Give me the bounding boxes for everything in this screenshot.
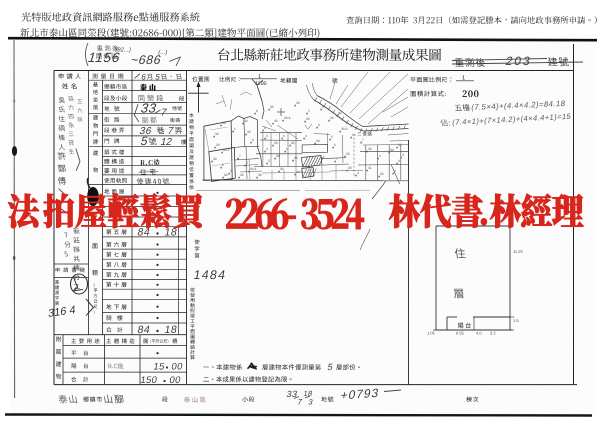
svg-text:3.2: 3.2 (490, 331, 496, 336)
svg-text:33: 33 (368, 147, 372, 151)
svg-text:1484: 1484 (192, 268, 227, 282)
svg-text:33: 33 (390, 148, 394, 152)
svg-text:9: 9 (318, 123, 320, 127)
svg-text:0: 0 (398, 159, 400, 163)
svg-text:33: 33 (276, 154, 280, 158)
svg-text:33: 33 (398, 143, 402, 147)
svg-text:15: 15 (152, 362, 165, 373)
svg-text:33: 33 (274, 119, 278, 123)
svg-text:6: 6 (222, 163, 224, 167)
svg-text:150: 150 (139, 375, 158, 386)
svg-text:33-2: 33-2 (223, 148, 230, 152)
svg-text:9: 9 (379, 154, 381, 158)
svg-text:33: 33 (306, 117, 310, 121)
svg-text:5: 5 (331, 135, 333, 139)
svg-text:5: 5 (246, 161, 248, 165)
svg-text:33-3: 33-3 (341, 127, 348, 131)
svg-text:6: 6 (334, 143, 336, 147)
svg-text:33: 33 (346, 152, 350, 156)
svg-text:9: 9 (283, 134, 285, 138)
svg-text:3: 3 (266, 147, 268, 151)
svg-text:33: 33 (296, 101, 300, 105)
svg-text:+0793: +0793 (339, 386, 380, 403)
svg-text:33: 33 (258, 173, 262, 177)
svg-text:00: 00 (170, 362, 183, 373)
svg-text:84: 84 (136, 226, 151, 238)
svg-text:7: 7 (336, 157, 338, 161)
svg-text:33: 33 (244, 119, 248, 123)
svg-text:7: 7 (239, 154, 241, 158)
svg-text:33: 33 (338, 111, 342, 115)
svg-text:2: 2 (308, 109, 310, 113)
svg-text:33: 33 (316, 139, 320, 143)
svg-text:33: 33 (294, 156, 298, 160)
svg-text:1: 1 (462, 75, 465, 81)
svg-text:33: 33 (280, 167, 284, 171)
svg-text:33: 33 (247, 130, 251, 134)
svg-text:33: 33 (330, 116, 334, 120)
svg-text:4.0: 4.0 (476, 331, 482, 336)
svg-text:1.5: 1.5 (513, 318, 519, 323)
svg-text:4: 4 (322, 105, 324, 109)
svg-text:(...): (...) (158, 49, 168, 56)
svg-text:8: 8 (256, 109, 258, 113)
svg-text:33: 33 (274, 141, 278, 145)
svg-text:33: 33 (270, 105, 274, 109)
svg-text:203: 203 (504, 54, 533, 68)
svg-text:33: 33 (352, 133, 356, 137)
svg-text:33: 33 (348, 166, 352, 170)
svg-text:7: 7 (362, 138, 364, 142)
svg-text:33: 33 (222, 121, 226, 125)
svg-text:33: 33 (224, 173, 228, 177)
svg-text:33: 33 (213, 157, 217, 161)
svg-text:1.05: 1.05 (427, 331, 436, 336)
svg-text:2: 2 (230, 169, 232, 173)
svg-text:33: 33 (291, 141, 295, 145)
svg-text:33: 33 (216, 143, 220, 147)
svg-text:(92...): (92...) (115, 47, 132, 54)
svg-text:5: 5 (268, 159, 270, 163)
svg-text:33-5: 33-5 (296, 170, 303, 174)
svg-text:3: 3 (264, 126, 266, 130)
svg-text:33: 33 (380, 172, 384, 176)
svg-text:3: 3 (394, 169, 396, 173)
svg-text:1: 1 (286, 147, 288, 151)
svg-text:43: 43 (240, 173, 244, 177)
svg-text:3: 3 (252, 138, 254, 142)
svg-text:41: 41 (368, 166, 372, 170)
svg-text:33: 33 (215, 132, 219, 136)
svg-text:33-4: 33-4 (250, 167, 257, 171)
svg-text:3: 3 (402, 153, 404, 157)
svg-text:1: 1 (234, 127, 236, 131)
svg-text:6.55: 6.55 (456, 331, 465, 336)
svg-text:4: 4 (357, 171, 359, 175)
svg-text:4: 4 (305, 134, 307, 138)
svg-text:11.25: 11.25 (513, 249, 523, 254)
svg-text:33-8: 33-8 (284, 116, 291, 120)
svg-text:3: 3 (266, 134, 268, 138)
svg-text:18: 18 (163, 324, 178, 336)
svg-text:84: 84 (136, 324, 151, 336)
svg-text:00: 00 (168, 375, 181, 386)
